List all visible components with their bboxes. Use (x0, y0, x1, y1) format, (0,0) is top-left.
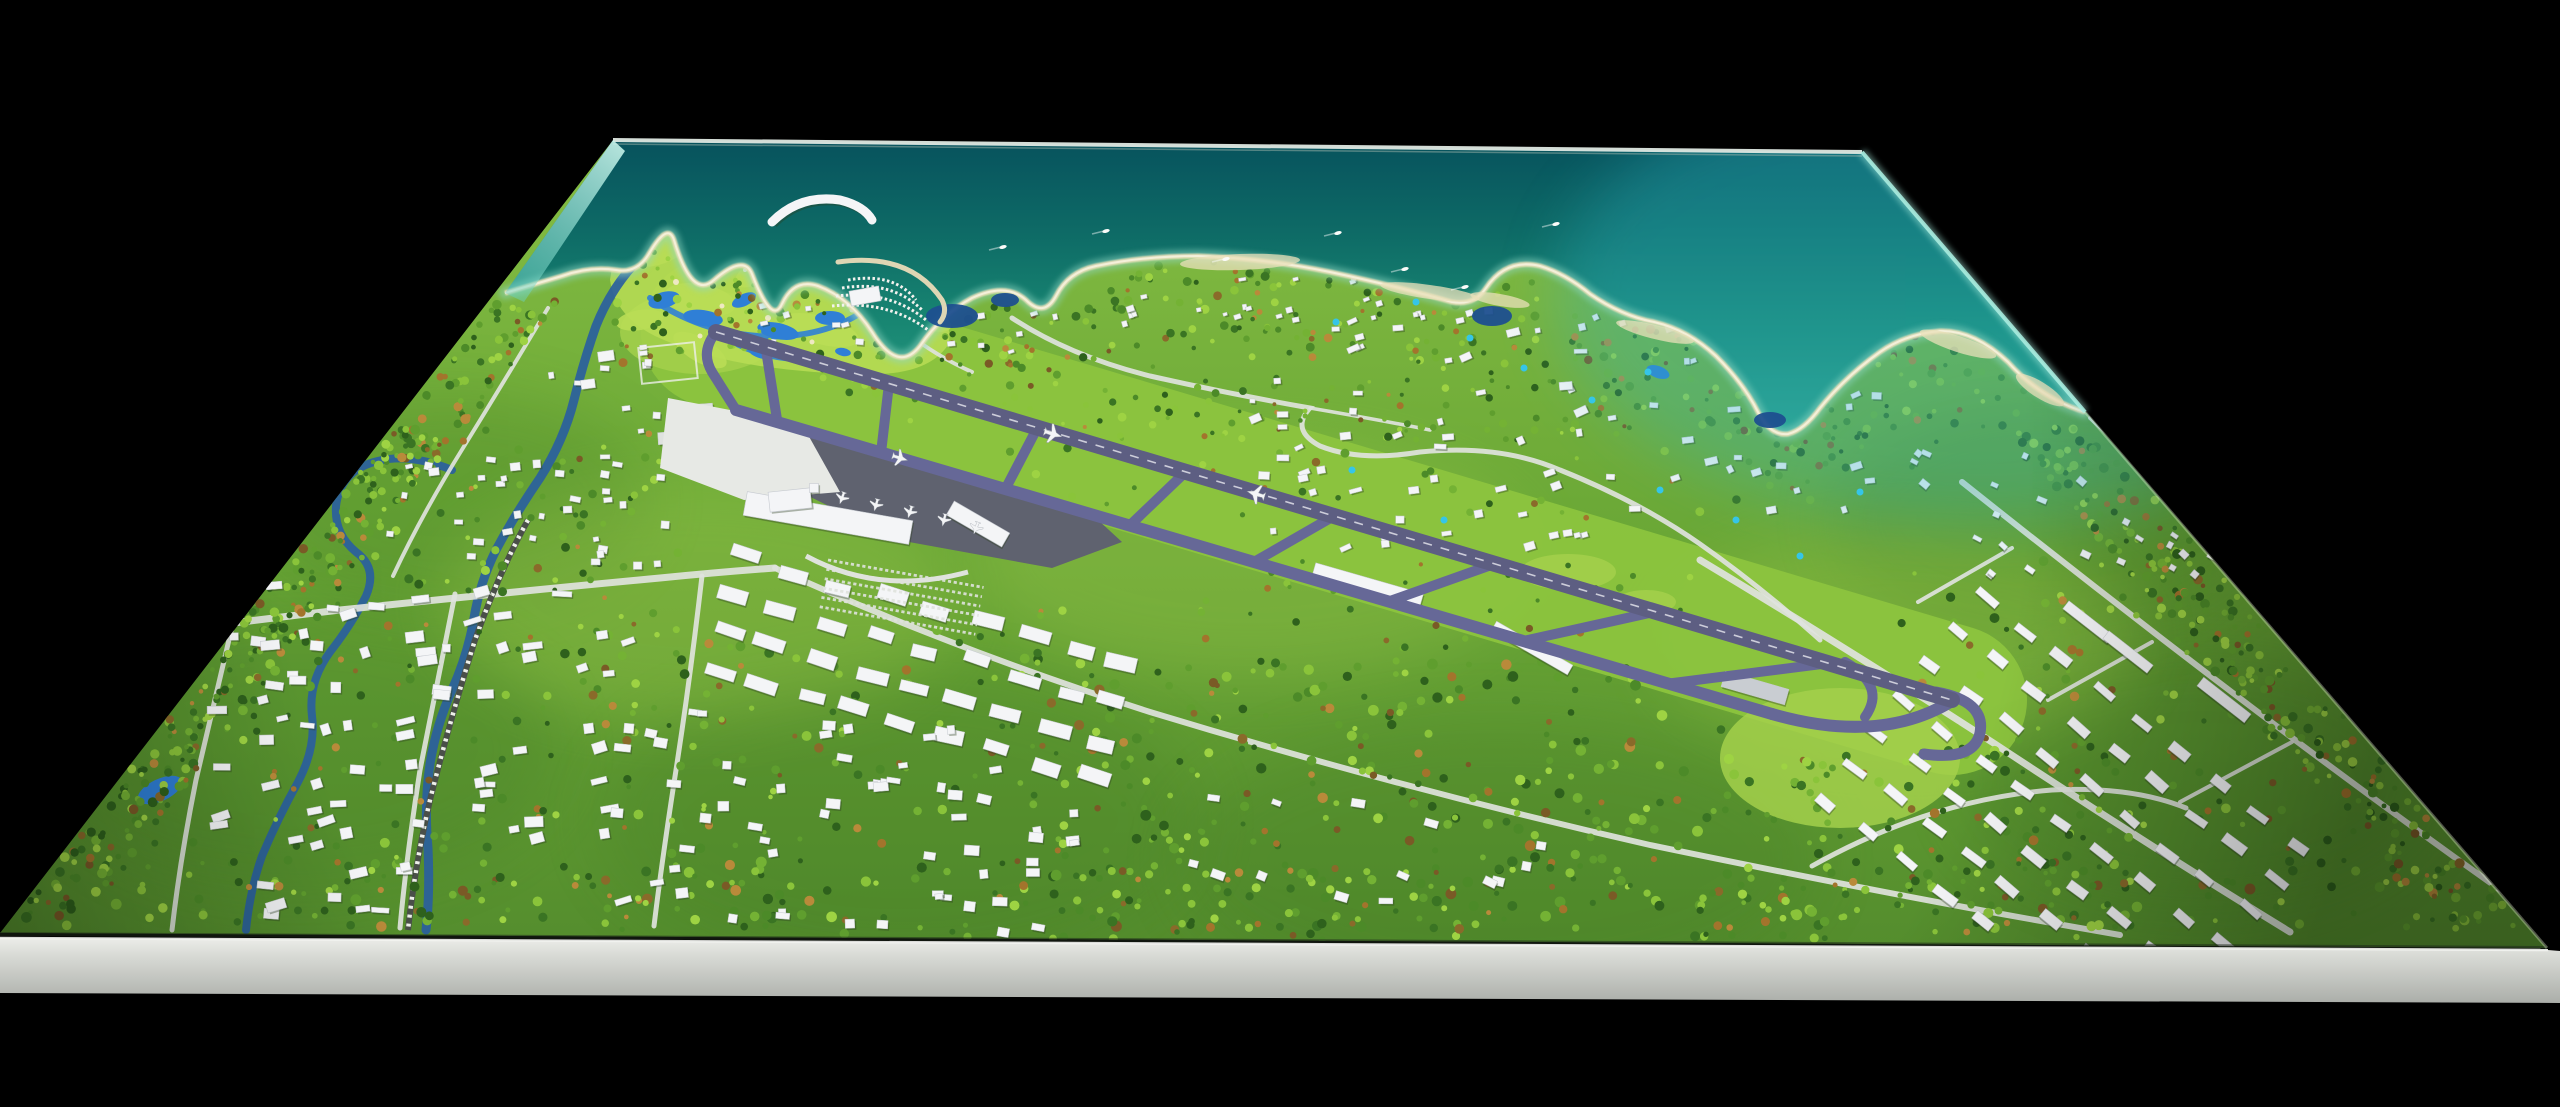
city-model-scene (0, 0, 2560, 1107)
scale-model-photograph (0, 0, 2560, 1107)
